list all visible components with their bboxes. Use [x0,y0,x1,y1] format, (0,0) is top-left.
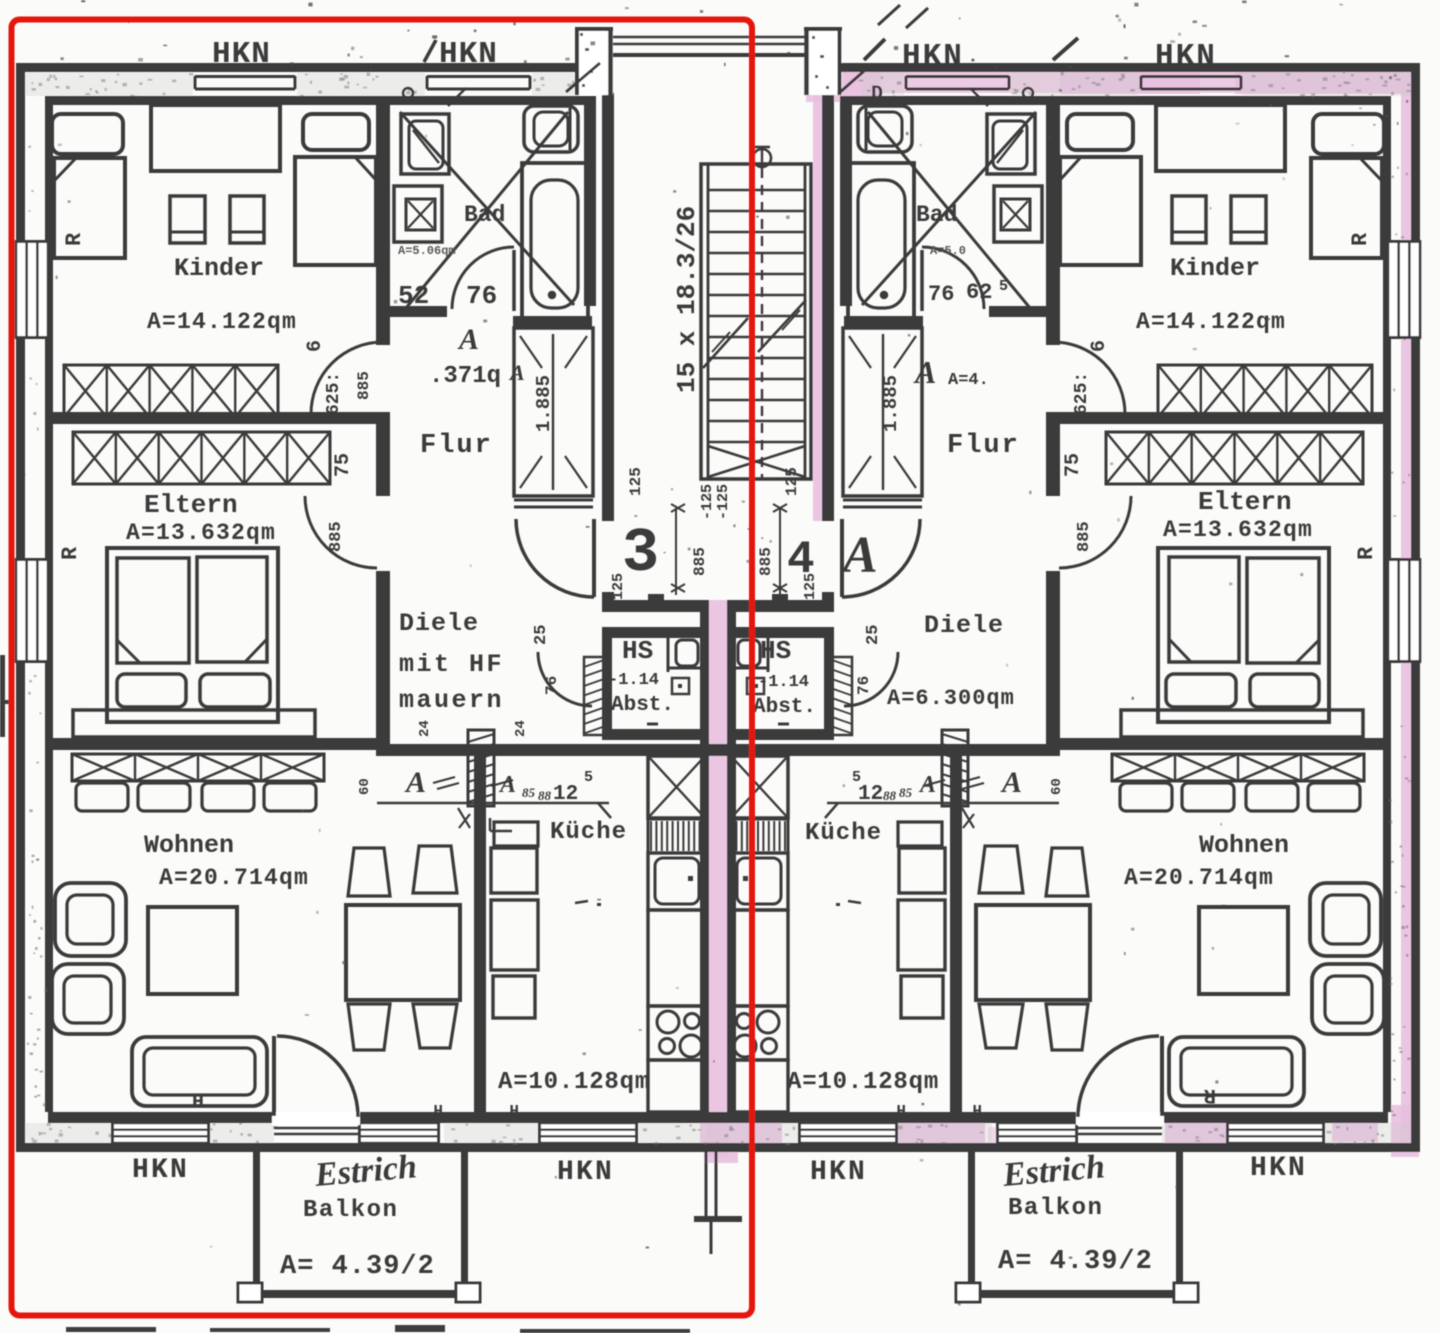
svg-text:Diele: Diele [399,609,479,638]
svg-text:625:: 625: [324,372,344,415]
svg-text:52: 52 [398,281,429,311]
svg-text:A: A [1000,766,1022,799]
svg-text:1.885: 1.885 [533,375,555,432]
svg-text:A=20.714qm: A=20.714qm [159,865,309,891]
svg-text:-1.14: -1.14 [608,671,659,690]
svg-text:HKN: HKN [1250,1153,1307,1184]
svg-text:885: 885 [691,547,709,576]
svg-text:H: H [972,1100,982,1118]
svg-text:885: 885 [327,521,346,552]
svg-text:Bad: Bad [916,202,957,228]
svg-text:24: 24 [417,720,433,737]
svg-text:A=10.128qm: A=10.128qm [498,1069,650,1096]
svg-text:15 x 18.3/26: 15 x 18.3/26 [672,206,702,393]
svg-text:H: H [433,1100,443,1118]
svg-text:75: 75 [1062,453,1085,477]
svg-text:D: D [871,83,883,106]
svg-text:88: 88 [883,788,897,803]
svg-text:Balkon: Balkon [303,1197,398,1224]
svg-text:12: 12 [858,783,883,806]
svg-text:A=5.0: A=5.0 [930,244,966,258]
svg-text:A: A [840,527,878,584]
svg-text:HKN: HKN [557,1157,614,1188]
svg-text:625:: 625: [1072,372,1092,415]
svg-text:A: A [457,323,479,356]
svg-text:A=6.300qm: A=6.300qm [887,686,1015,711]
svg-text:Wohnen: Wohnen [144,831,234,860]
svg-text:A=20.714qm: A=20.714qm [1124,865,1274,891]
svg-text:A: A [913,354,936,390]
svg-text:5: 5 [999,278,1008,295]
svg-text:Wohnen: Wohnen [1199,831,1289,860]
svg-text:Kinder: Kinder [1170,254,1260,283]
svg-text:A=13.632qm: A=13.632qm [126,520,276,546]
svg-text:6: 6 [304,340,327,352]
svg-text:A=13.632qm: A=13.632qm [1163,517,1313,543]
svg-text:A: A [508,360,525,385]
svg-text:Abst.: Abst. [611,694,674,717]
svg-text:-1.14: -1.14 [758,673,809,692]
svg-text:125: 125 [783,467,801,496]
svg-text:62: 62 [966,280,992,305]
svg-text:60: 60 [1049,778,1065,795]
svg-text:H: H [192,1087,204,1110]
svg-text:88: 88 [538,788,552,803]
svg-text:885: 885 [757,547,775,576]
svg-text:25: 25 [532,625,551,645]
svg-text:76: 76 [928,282,954,307]
svg-text:3: 3 [622,518,659,589]
svg-text:HKN: HKN [439,37,498,72]
svg-text:HKN: HKN [132,1155,189,1186]
svg-text:H: H [509,1100,519,1118]
svg-text:HS: HS [622,636,653,666]
svg-text:HKN: HKN [1155,39,1217,74]
svg-text:A=14.122qm: A=14.122qm [147,309,297,335]
svg-text:mauern: mauern [399,686,504,715]
svg-text:76: 76 [466,281,497,311]
svg-text:76: 76 [543,676,561,695]
svg-text:R: R [58,546,83,560]
svg-text:R: R [1354,546,1379,560]
svg-text:85: 85 [899,785,913,800]
svg-text:125: 125 [610,573,627,600]
svg-text:A=14.122qm: A=14.122qm [1136,309,1286,335]
svg-text:Eltern: Eltern [1198,487,1292,517]
svg-text:Küche: Küche [550,819,627,846]
svg-text:24: 24 [513,720,529,737]
svg-text:HS: HS [760,636,791,666]
svg-text:A= 4.39/2: A= 4.39/2 [998,1247,1153,1277]
svg-text:Küche: Küche [805,820,882,847]
svg-text:Flur: Flur [947,431,1020,461]
svg-text:Balkon: Balkon [1008,1195,1103,1222]
svg-text:HKN: HKN [810,1157,867,1188]
svg-text:885: 885 [1075,521,1094,552]
svg-text:R: R [62,232,87,246]
svg-text:Diele: Diele [924,611,1004,640]
svg-text:R: R [1204,1083,1216,1106]
svg-text:HKN: HKN [902,39,964,74]
svg-text:60: 60 [357,778,373,795]
svg-text:125: 125 [627,467,645,496]
svg-text:-125: -125 [715,484,732,520]
svg-text:A= 4.39/2: A= 4.39/2 [280,1252,435,1282]
svg-text:-125: -125 [699,484,716,520]
svg-text:Flur: Flur [420,431,493,461]
svg-text:R: R [1348,232,1373,246]
svg-text:76: 76 [855,676,873,695]
svg-text:12: 12 [553,783,578,806]
svg-text:Abst.: Abst. [753,696,816,719]
svg-text:A=4.: A=4. [948,371,989,390]
svg-text:75: 75 [332,453,355,477]
svg-text:6: 6 [1088,340,1111,352]
svg-text:885: 885 [355,371,373,400]
svg-text:Bad: Bad [464,202,505,228]
svg-text:H: H [896,1100,906,1118]
svg-text:85: 85 [522,785,536,800]
svg-text:1.885: 1.885 [880,375,902,432]
svg-text:.371q: .371q [429,363,501,390]
svg-text:25: 25 [864,625,883,645]
svg-text:mit HF: mit HF [399,650,504,679]
svg-text:Kinder: Kinder [174,254,264,283]
svg-text:5: 5 [584,769,593,786]
svg-text:Eltern: Eltern [144,490,238,520]
svg-text:A: A [498,772,516,798]
svg-text:125: 125 [802,573,819,600]
svg-text:A: A [404,766,426,799]
svg-text:HKN: HKN [212,37,271,72]
svg-text:A=10.128qm: A=10.128qm [787,1069,939,1096]
svg-text:A=5.06qm: A=5.06qm [398,244,456,258]
svg-text:5: 5 [852,769,861,786]
